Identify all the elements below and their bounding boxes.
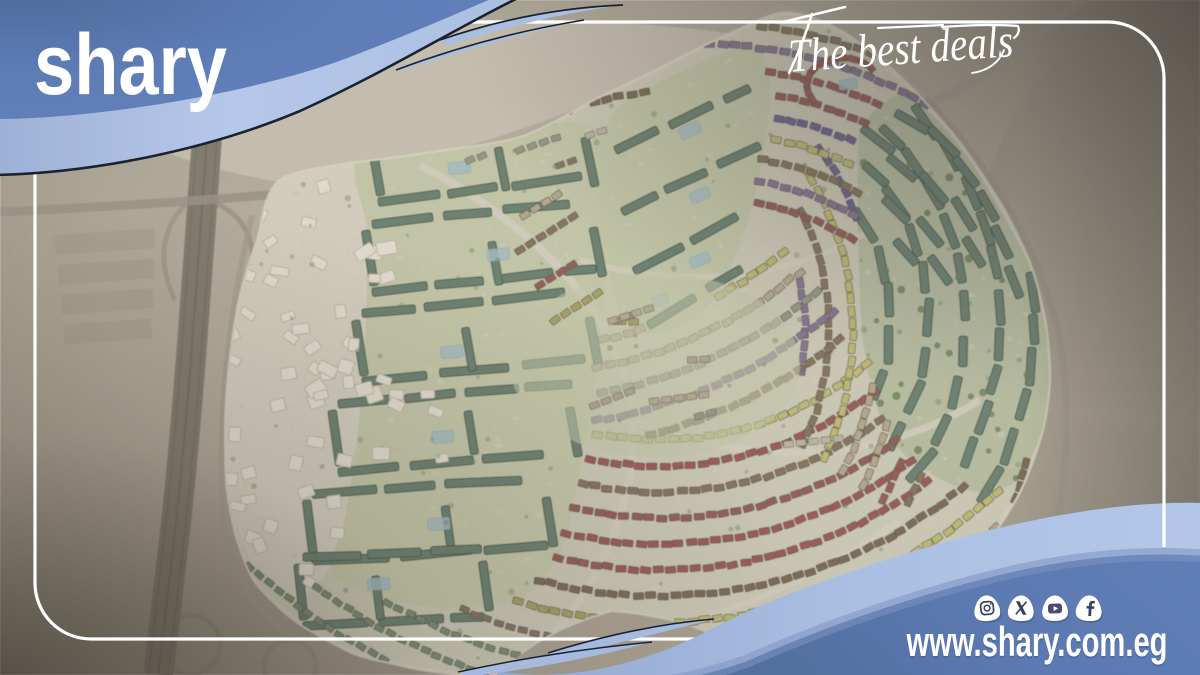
- svg-text:shary: shary: [34, 17, 227, 113]
- svg-text:www.shary.com.eg: www.shary.com.eg: [906, 618, 1168, 665]
